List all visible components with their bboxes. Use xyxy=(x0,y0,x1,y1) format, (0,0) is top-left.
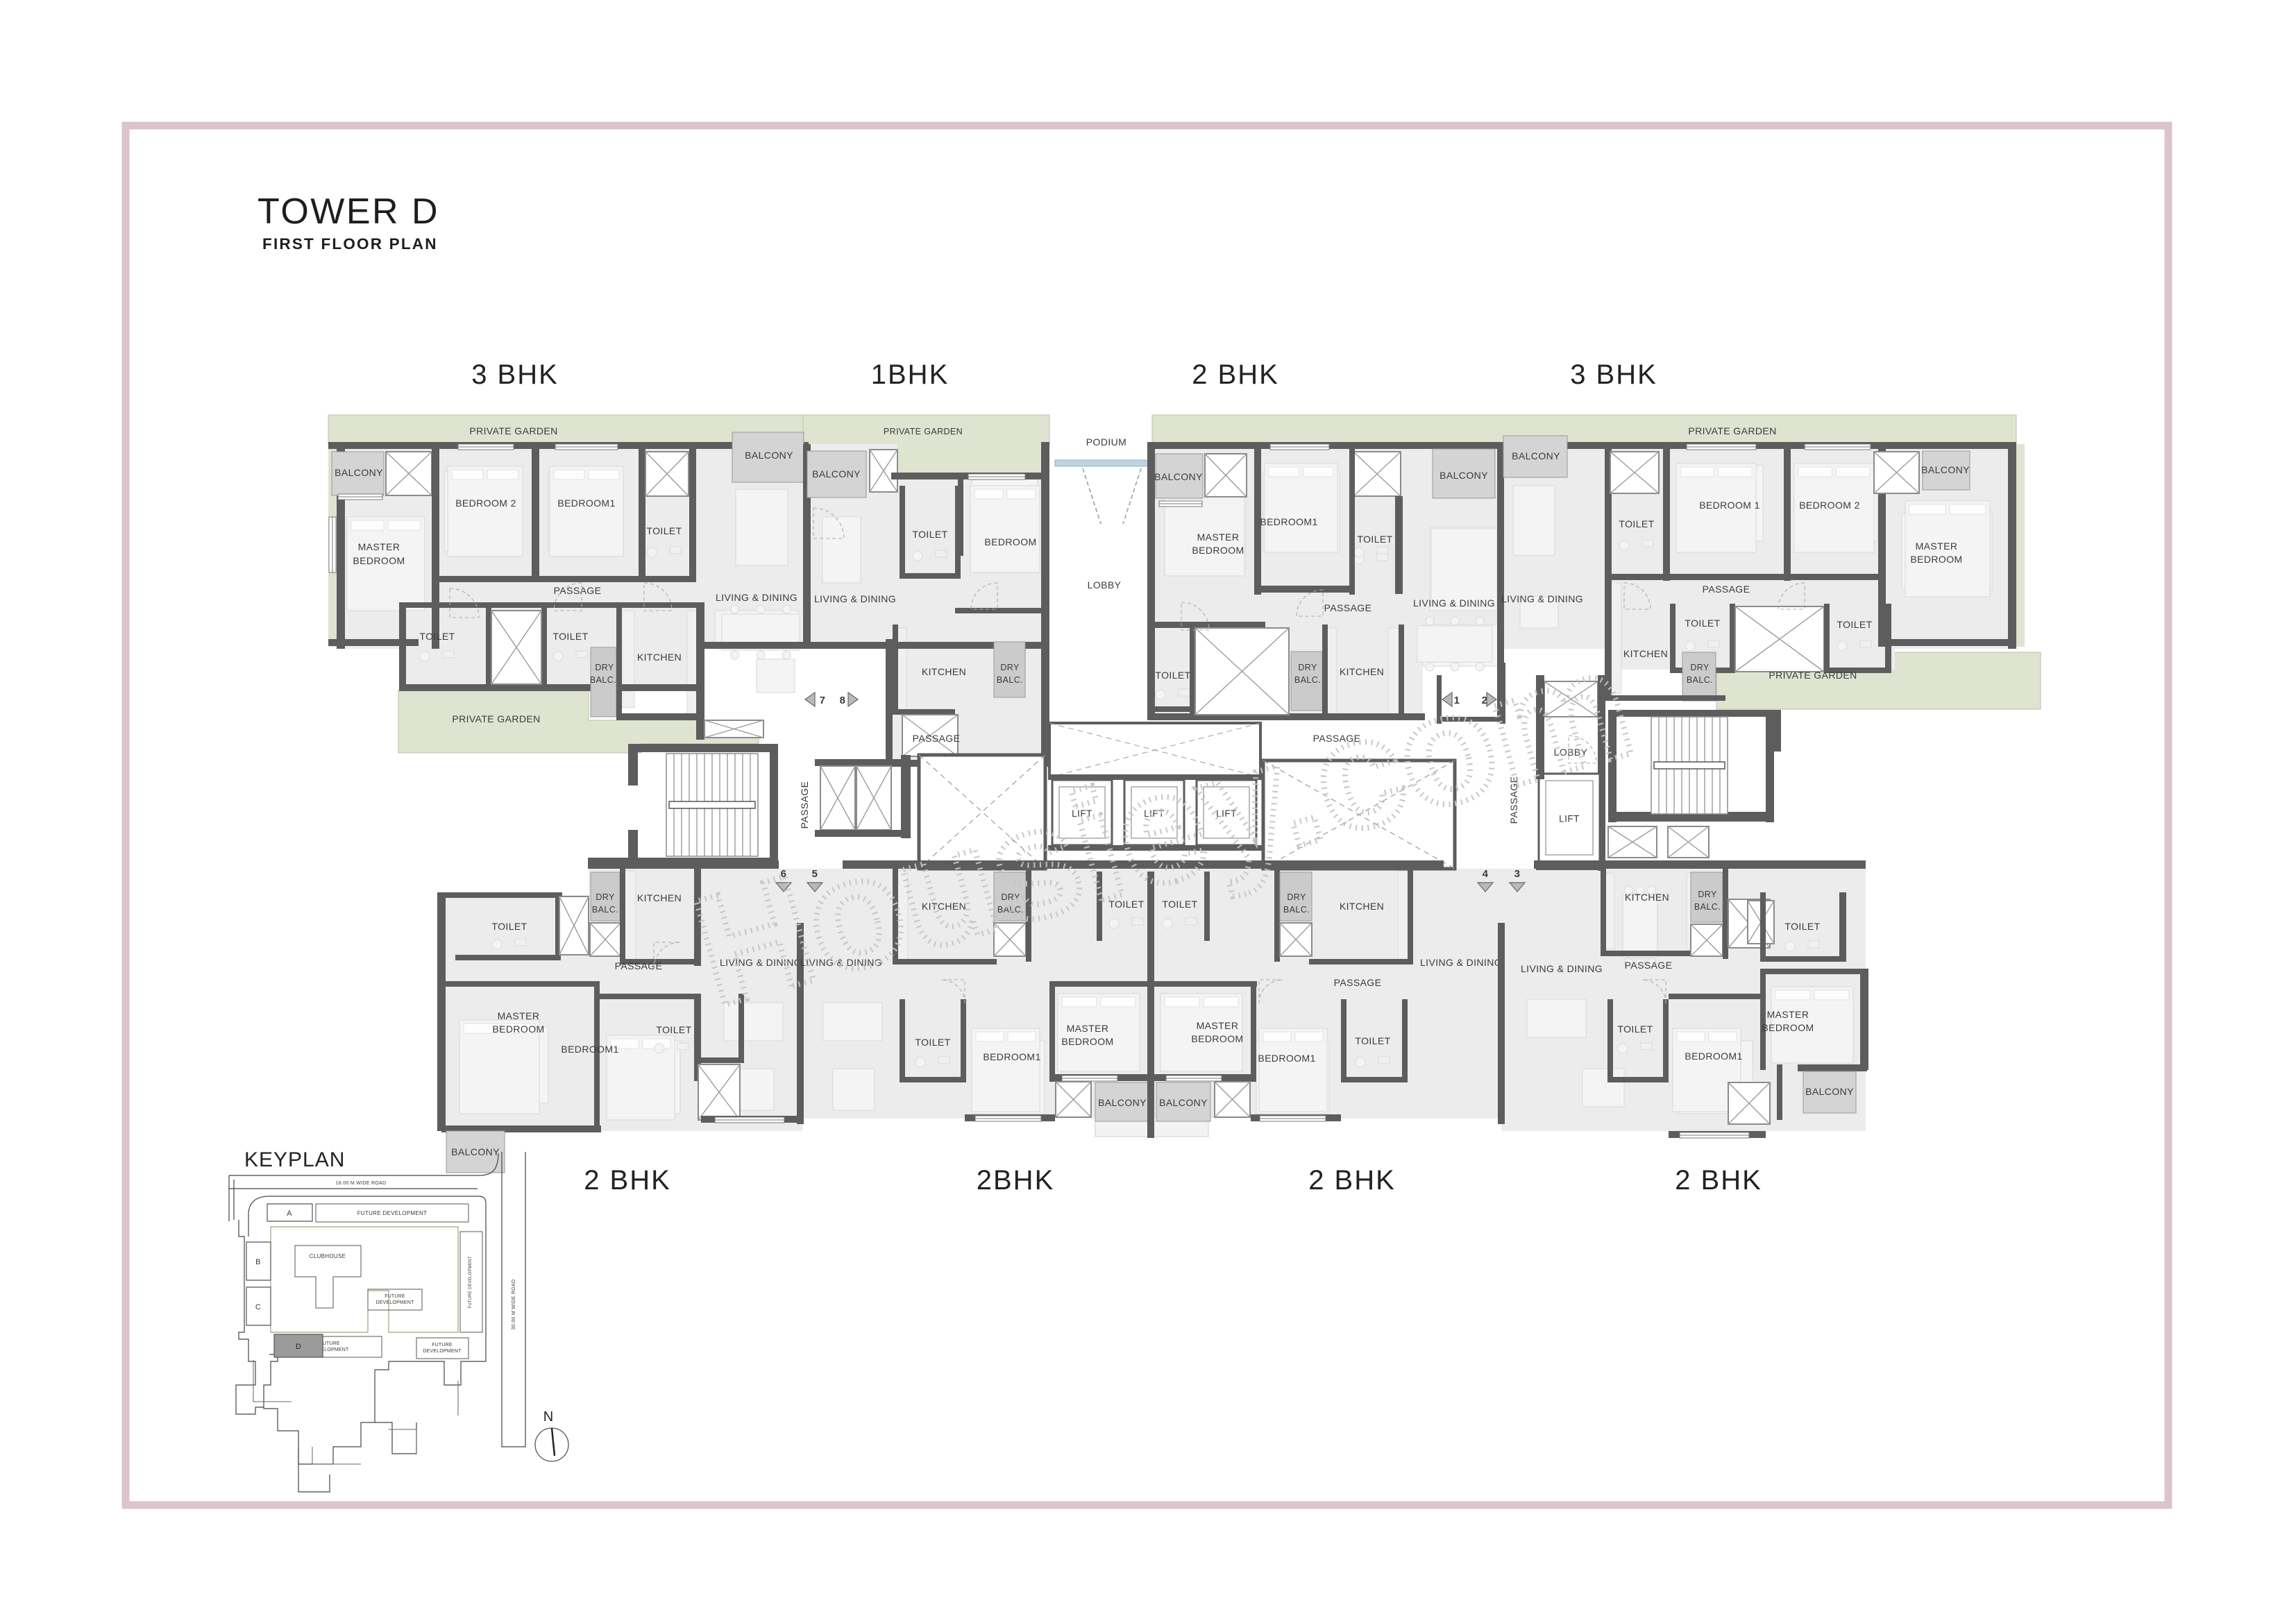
svg-text:FUTURE DEVELOPMENT: FUTURE DEVELOPMENT xyxy=(357,1210,428,1216)
svg-text:KITCHEN: KITCHEN xyxy=(1623,648,1668,659)
svg-text:BEDROOM: BEDROOM xyxy=(1192,545,1244,556)
svg-text:BALCONY: BALCONY xyxy=(1159,1097,1208,1108)
svg-text:PRIVATE GARDEN: PRIVATE GARDEN xyxy=(884,427,963,436)
svg-text:MASTER: MASTER xyxy=(358,541,400,552)
svg-text:FIRST FLOOR PLAN: FIRST FLOOR PLAN xyxy=(262,235,438,253)
svg-text:TOILET: TOILET xyxy=(646,525,682,536)
svg-text:BALC.: BALC. xyxy=(1687,675,1713,685)
svg-text:BEDROOM: BEDROOM xyxy=(1191,1033,1243,1044)
svg-text:BALCONY: BALCONY xyxy=(1805,1086,1854,1097)
svg-text:LIVING & DINING: LIVING & DINING xyxy=(1420,957,1502,968)
svg-text:MASTER: MASTER xyxy=(1767,1009,1809,1020)
svg-text:BALCONY: BALCONY xyxy=(1921,464,1970,475)
svg-text:MASTER: MASTER xyxy=(1067,1023,1109,1034)
svg-text:1BHK: 1BHK xyxy=(871,359,949,390)
svg-text:30.00 M WIDE ROAD: 30.00 M WIDE ROAD xyxy=(512,1280,516,1330)
svg-text:PASSAGE: PASSAGE xyxy=(799,781,810,829)
svg-text:BEDROOM: BEDROOM xyxy=(984,536,1036,547)
svg-text:BALC.: BALC. xyxy=(997,675,1023,685)
svg-text:3: 3 xyxy=(1514,868,1521,880)
svg-text:2 BHK: 2 BHK xyxy=(1675,1165,1762,1196)
svg-text:FUTURE DEVELOPMENT: FUTURE DEVELOPMENT xyxy=(469,1256,473,1308)
svg-text:PASSAGE: PASSAGE xyxy=(1703,584,1750,595)
svg-text:DRY: DRY xyxy=(596,892,615,902)
svg-text:BEDROOM1: BEDROOM1 xyxy=(561,1044,618,1055)
svg-text:PRIVATE GARDEN: PRIVATE GARDEN xyxy=(1769,670,1857,681)
svg-text:MASTER: MASTER xyxy=(1197,1020,1239,1031)
svg-text:8: 8 xyxy=(840,695,846,706)
svg-text:D: D xyxy=(296,1343,301,1351)
svg-text:PASSAGE: PASSAGE xyxy=(1625,960,1673,971)
svg-text:PASSAGE: PASSAGE xyxy=(615,960,663,971)
svg-text:BALC.: BALC. xyxy=(590,675,616,685)
svg-text:BALC.: BALC. xyxy=(1694,902,1721,912)
svg-text:BEDROOM1: BEDROOM1 xyxy=(1260,516,1317,527)
svg-text:2 BHK: 2 BHK xyxy=(584,1165,671,1196)
svg-text:PASSAGE: PASSAGE xyxy=(554,585,602,596)
svg-text:C: C xyxy=(255,1303,261,1311)
svg-text:BEDROOM: BEDROOM xyxy=(1910,554,1962,565)
svg-text:DRY: DRY xyxy=(1287,892,1306,902)
svg-text:TOILET: TOILET xyxy=(1357,534,1392,545)
svg-text:BEDROOM1: BEDROOM1 xyxy=(1258,1053,1315,1064)
svg-text:TOILET: TOILET xyxy=(1784,921,1820,932)
svg-text:TOILET: TOILET xyxy=(1617,1023,1653,1035)
svg-text:DEVELOPMENT: DEVELOPMENT xyxy=(375,1300,414,1305)
svg-text:LIFT: LIFT xyxy=(1559,814,1580,824)
svg-text:KITCHEN: KITCHEN xyxy=(637,652,682,663)
svg-text:BALCONY: BALCONY xyxy=(451,1146,500,1157)
svg-text:4: 4 xyxy=(1483,868,1489,880)
svg-text:DRY: DRY xyxy=(1298,663,1317,672)
svg-text:TOILET: TOILET xyxy=(1837,619,1872,630)
svg-text:DRY: DRY xyxy=(595,663,614,672)
svg-text:PODIUM: PODIUM xyxy=(1086,436,1126,448)
svg-text:DRY: DRY xyxy=(1690,663,1710,672)
svg-text:LIVING & DINING: LIVING & DINING xyxy=(814,593,896,604)
svg-text:TOILET: TOILET xyxy=(491,921,527,932)
svg-text:3 BHK: 3 BHK xyxy=(471,359,559,390)
svg-text:BEDROOM 2: BEDROOM 2 xyxy=(1799,500,1860,511)
svg-text:MASTER: MASTER xyxy=(498,1010,540,1021)
svg-text:A: A xyxy=(287,1209,292,1218)
svg-text:BEDROOM: BEDROOM xyxy=(492,1023,544,1035)
svg-text:TOILET: TOILET xyxy=(656,1024,691,1035)
svg-text:BALCONY: BALCONY xyxy=(812,468,861,479)
svg-text:BEDROOM1: BEDROOM1 xyxy=(1685,1051,1742,1062)
svg-text:TOILET: TOILET xyxy=(1355,1035,1390,1046)
svg-text:BALCONY: BALCONY xyxy=(335,467,383,478)
svg-text:PASSAGE: PASSAGE xyxy=(1334,977,1382,988)
svg-text:PASSAGE: PASSAGE xyxy=(1324,602,1372,613)
svg-text:LIVING & DINING: LIVING & DINING xyxy=(1501,593,1583,604)
svg-text:TOILET: TOILET xyxy=(1155,670,1190,681)
svg-text:2BHK: 2BHK xyxy=(977,1165,1055,1196)
svg-text:BEDROOM 1: BEDROOM 1 xyxy=(1699,500,1760,511)
svg-text:TOILET: TOILET xyxy=(912,529,947,540)
svg-text:KEYPLAN: KEYPLAN xyxy=(244,1148,345,1171)
svg-text:LIVING & DINING: LIVING & DINING xyxy=(1521,963,1603,974)
svg-text:PRIVATE GARDEN: PRIVATE GARDEN xyxy=(1688,425,1776,436)
svg-text:B: B xyxy=(255,1258,261,1266)
svg-text:FUTURE: FUTURE xyxy=(432,1343,453,1348)
svg-text:LOBBY: LOBBY xyxy=(1088,579,1122,590)
svg-text:KITCHEN: KITCHEN xyxy=(1340,666,1384,677)
svg-text:KITCHEN: KITCHEN xyxy=(1340,901,1384,912)
svg-text:BALCONY: BALCONY xyxy=(745,450,793,461)
svg-text:FUTURE: FUTURE xyxy=(385,1294,405,1299)
svg-text:TOILET: TOILET xyxy=(419,631,455,642)
svg-text:2 BHK: 2 BHK xyxy=(1192,359,1279,390)
svg-text:DRY: DRY xyxy=(1000,663,1020,672)
svg-text:BEDROOM1: BEDROOM1 xyxy=(983,1051,1040,1062)
svg-text:BALCONY: BALCONY xyxy=(1512,450,1560,461)
svg-text:KITCHEN: KITCHEN xyxy=(922,666,966,677)
svg-text:LIVING & DINING: LIVING & DINING xyxy=(716,592,797,603)
svg-text:PRIVATE GARDEN: PRIVATE GARDEN xyxy=(469,425,557,436)
svg-text:3 BHK: 3 BHK xyxy=(1570,359,1657,390)
svg-text:BALCONY: BALCONY xyxy=(1440,470,1488,481)
svg-text:PRIVATE GARDEN: PRIVATE GARDEN xyxy=(452,713,540,724)
svg-text:DRY: DRY xyxy=(1698,890,1717,899)
svg-text:BALC.: BALC. xyxy=(1283,905,1310,915)
svg-text:BEDROOM: BEDROOM xyxy=(1762,1022,1814,1033)
svg-text:18.00 M WIDE ROAD: 18.00 M WIDE ROAD xyxy=(336,1181,387,1186)
svg-text:BALC.: BALC. xyxy=(592,905,618,915)
svg-text:TOILET: TOILET xyxy=(1685,618,1720,629)
svg-text:CLUBHOUSE: CLUBHOUSE xyxy=(310,1253,346,1259)
svg-text:BALCONY: BALCONY xyxy=(1154,471,1203,482)
svg-text:PASSAGE: PASSAGE xyxy=(913,733,961,744)
svg-text:7: 7 xyxy=(820,695,826,706)
svg-text:N: N xyxy=(543,1409,553,1425)
svg-text:DEVELOPMENT: DEVELOPMENT xyxy=(423,1349,462,1354)
svg-text:KITCHEN: KITCHEN xyxy=(637,892,682,903)
svg-text:MASTER: MASTER xyxy=(1197,532,1240,543)
svg-text:LIVING & DINING: LIVING & DINING xyxy=(1413,597,1495,609)
svg-text:TOWER D: TOWER D xyxy=(258,192,439,232)
svg-text:TOILET: TOILET xyxy=(552,631,588,642)
svg-text:BEDROOM: BEDROOM xyxy=(353,555,405,566)
svg-text:MASTER: MASTER xyxy=(1916,541,1958,552)
svg-text:2 BHK: 2 BHK xyxy=(1308,1165,1396,1196)
svg-text:BEDROOM 2: BEDROOM 2 xyxy=(455,498,516,509)
svg-text:KITCHEN: KITCHEN xyxy=(1625,892,1669,903)
svg-text:TOILET: TOILET xyxy=(1619,518,1654,529)
svg-text:TOILET: TOILET xyxy=(915,1037,950,1048)
svg-text:BALC.: BALC. xyxy=(1294,675,1321,685)
svg-text:BEDROOM1: BEDROOM1 xyxy=(557,498,615,509)
svg-text:BEDROOM: BEDROOM xyxy=(1061,1036,1113,1047)
svg-text:BALCONY: BALCONY xyxy=(1098,1097,1147,1108)
